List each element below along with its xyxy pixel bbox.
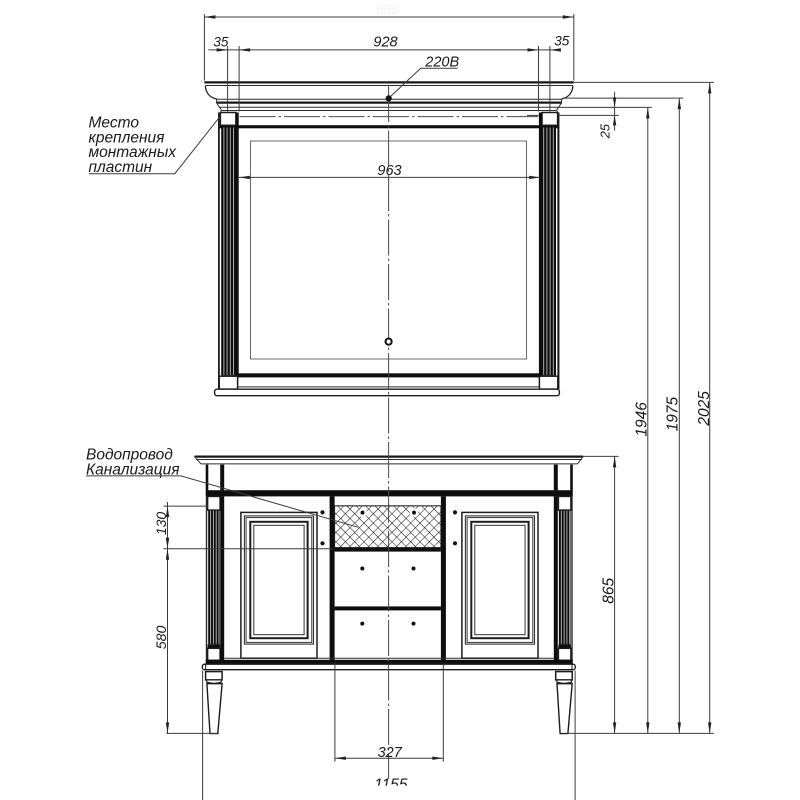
svg-text:130: 130: [153, 512, 169, 536]
svg-text:35: 35: [213, 34, 229, 49]
svg-text:2025: 2025: [696, 391, 713, 427]
svg-text:1946: 1946: [634, 402, 651, 437]
svg-text:963: 963: [377, 163, 401, 179]
svg-text:1975: 1975: [664, 396, 681, 431]
svg-text:327: 327: [378, 745, 403, 761]
svg-text:928: 928: [373, 34, 397, 50]
svg-text:998: 998: [375, 1, 399, 17]
svg-text:865: 865: [600, 577, 617, 603]
svg-text:25: 25: [598, 123, 613, 139]
svg-text:580: 580: [154, 625, 170, 649]
svg-text:35: 35: [554, 34, 570, 49]
